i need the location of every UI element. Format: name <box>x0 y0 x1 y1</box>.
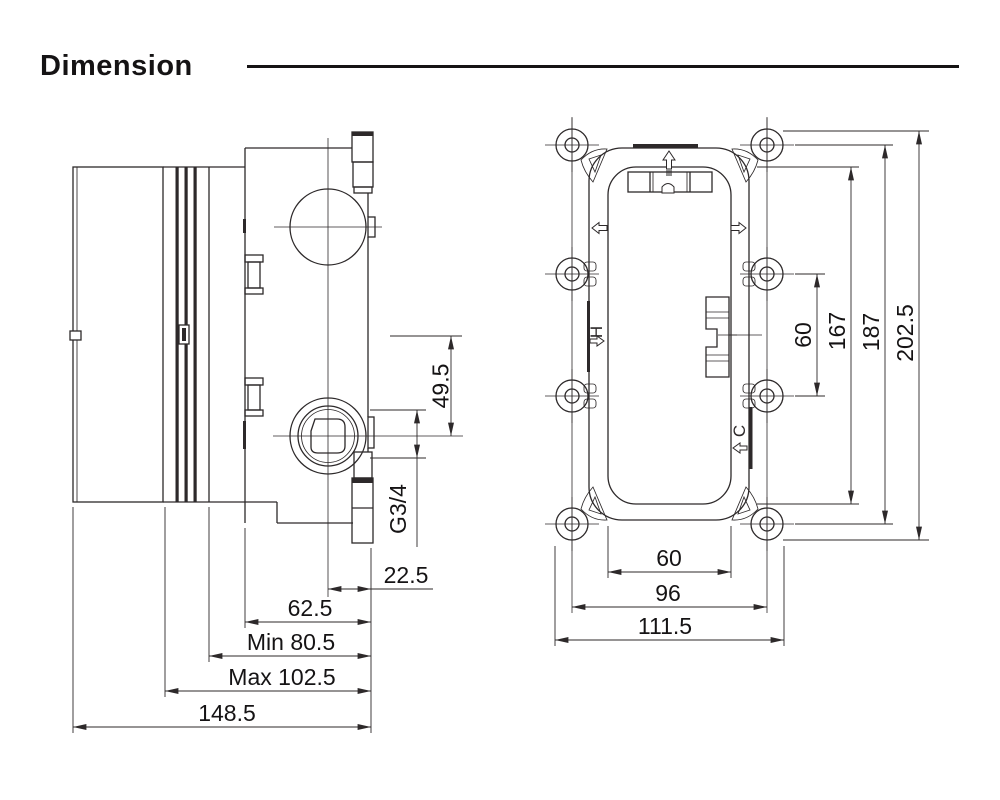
center-cartridge-feature <box>706 297 762 377</box>
dim-overall-width: 111.5 <box>555 613 784 640</box>
dim-label-187: 187 <box>858 313 884 351</box>
dim-center-to-front: 22.5 <box>328 548 433 733</box>
dim-label-49-5: 49.5 <box>428 364 454 409</box>
front-view: H C 6 <box>545 117 929 646</box>
dim-label-202-5: 202.5 <box>892 304 918 362</box>
dim-label-148-5: 148.5 <box>198 700 256 726</box>
dim-hole-span-horizontal: 96 <box>572 580 767 607</box>
dim-outlet-thread: G3/4 <box>370 410 426 547</box>
bracket-frame <box>581 148 758 520</box>
dim-inner-frame-height: 167 <box>824 167 851 504</box>
dim-label-60-bottom: 60 <box>656 545 682 571</box>
dim-label-min-80-5: Min 80.5 <box>247 629 335 655</box>
cold-arrow-icon <box>733 443 747 453</box>
dim-label-60-vertical: 60 <box>790 322 816 348</box>
dim-label-g34: G3/4 <box>385 484 411 534</box>
plaster-guard-box <box>70 167 163 502</box>
dim-label-96: 96 <box>655 580 681 606</box>
up-arrow-icon <box>663 151 675 169</box>
top-features <box>628 144 712 193</box>
dim-label-62-5: 62.5 <box>288 595 333 621</box>
dimension-drawing: 49.5 G3/4 22.5 62.5 <box>0 0 1000 800</box>
dim-inner-frame-width: 60 <box>608 545 731 572</box>
side-flow-arrows <box>592 223 746 234</box>
side-dimensions: 49.5 G3/4 22.5 62.5 <box>73 336 462 733</box>
dim-outlet-drop: 49.5 <box>390 336 462 436</box>
dim-label-max-102-5: Max 102.5 <box>228 664 335 690</box>
cold-port-label: C <box>730 425 749 437</box>
dim-overall-height: 202.5 <box>892 131 919 540</box>
left-arrow-icon <box>592 223 607 234</box>
mounting-holes <box>545 118 794 551</box>
front-dimensions-horizontal: 60 96 111.5 <box>555 526 784 646</box>
right-arrow-icon <box>731 223 746 234</box>
dim-max-depth: Max 102.5 <box>165 507 371 697</box>
dim-min-depth: Min 80.5 <box>209 507 371 662</box>
dim-label-111-5: 111.5 <box>638 613 692 639</box>
dim-label-22-5: 22.5 <box>384 562 429 588</box>
front-dimensions-vertical: 60 167 187 202.5 <box>757 131 929 540</box>
dim-port-spacing-vertical: 60 <box>790 274 817 396</box>
adjustment-sleeve-ribs <box>163 167 277 502</box>
dim-hole-span-vertical: 187 <box>858 145 885 524</box>
hot-port-marking: H <box>587 301 606 372</box>
dim-label-167: 167 <box>824 312 850 350</box>
side-view: 49.5 G3/4 22.5 62.5 <box>70 132 463 733</box>
